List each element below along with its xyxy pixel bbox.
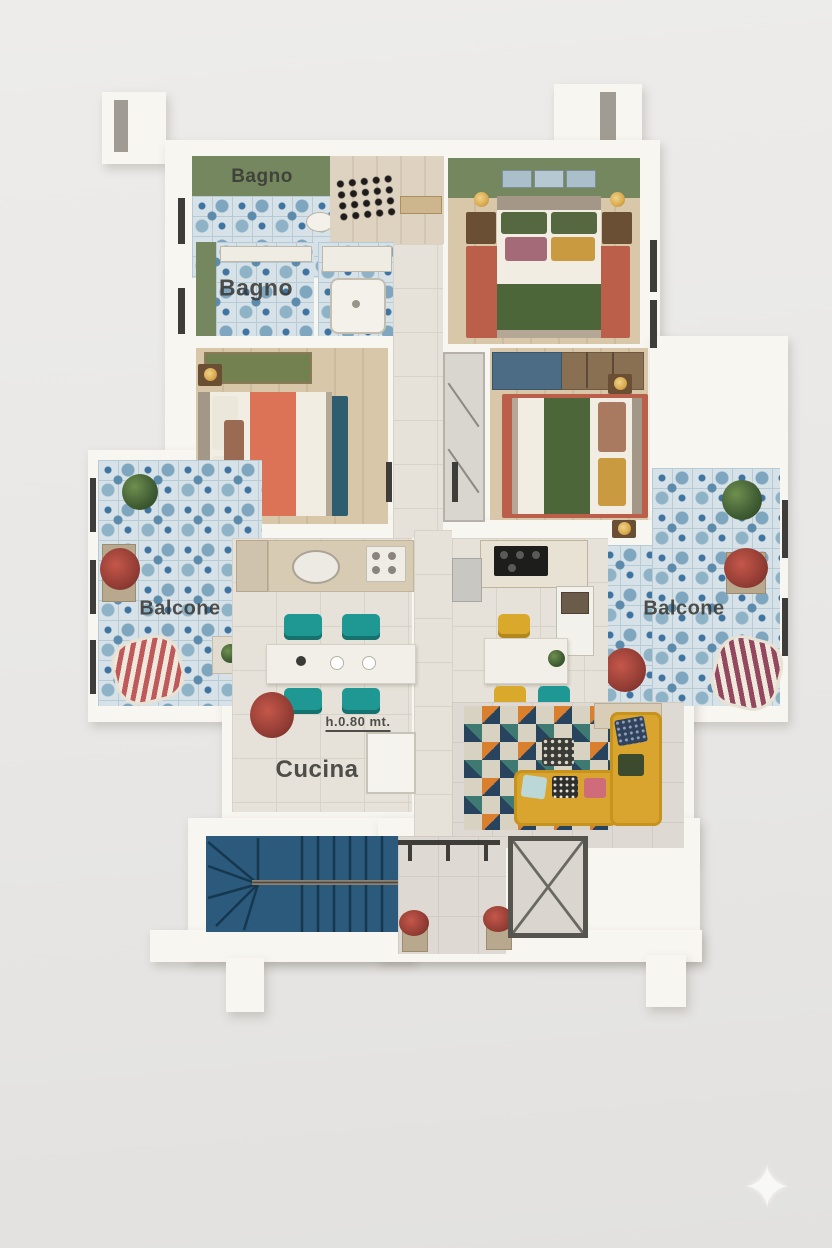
wall-art — [502, 170, 532, 188]
coffee-table — [542, 738, 574, 766]
tableware — [296, 656, 306, 666]
built-in-oven — [561, 592, 589, 614]
burner — [372, 566, 380, 574]
shower-drain — [352, 300, 360, 308]
stove — [366, 546, 406, 582]
sofa-pillow — [614, 716, 648, 747]
burner — [372, 552, 380, 560]
bed-pillow — [501, 212, 547, 234]
sofa-pillow — [584, 778, 606, 798]
flower-plant — [100, 548, 140, 590]
potted-plant — [122, 474, 158, 510]
window-frame — [782, 500, 788, 558]
bed-footboard — [497, 330, 601, 338]
wall-slab-protrusion-left — [226, 958, 264, 1012]
floor-plan-render: { "rooms": [ { "name": "bathroom-top", "… — [0, 0, 832, 1248]
burner — [532, 551, 540, 559]
stair-treads — [206, 836, 402, 932]
window-frame — [782, 598, 788, 656]
bedside-lamp — [204, 368, 217, 381]
bed-footboard — [512, 398, 518, 514]
burner — [508, 564, 516, 572]
nightstand — [602, 212, 632, 244]
flower-plant — [604, 648, 646, 692]
flower-plant — [250, 692, 294, 738]
room-label-cucina: Cucina — [275, 756, 358, 784]
kitchen-sink — [292, 550, 340, 584]
door-frame — [386, 462, 392, 502]
sofa-pillow — [552, 776, 578, 798]
sofa-pillow — [618, 754, 644, 776]
bed-headboard — [497, 196, 601, 210]
stairwell — [206, 836, 402, 932]
bed-accent-pillow — [598, 402, 626, 452]
sofa-pillow — [521, 774, 548, 799]
tall-cabinet — [366, 732, 416, 794]
table-plant — [548, 650, 565, 667]
window-frame — [90, 478, 96, 532]
bedside-lamp — [618, 522, 631, 535]
closet-hangers — [334, 173, 396, 223]
dining-chair-teal — [342, 688, 380, 714]
bed-accent-pillow — [551, 237, 595, 261]
wardrobe-blue-doors — [492, 352, 562, 390]
wall-art — [534, 170, 564, 188]
railing-post — [446, 845, 450, 861]
nightstand — [466, 212, 496, 244]
tableware — [330, 656, 344, 670]
shelf-divider — [586, 352, 588, 388]
washbasin-unit — [322, 246, 392, 272]
window-frame — [178, 288, 185, 334]
bed-footboard — [326, 392, 332, 516]
bedside-lamp — [614, 377, 627, 390]
window-frame — [650, 300, 657, 348]
fridge — [452, 558, 482, 602]
wall-art — [566, 170, 596, 188]
bed-accent-pillow — [505, 237, 547, 261]
bedside-lamp — [474, 192, 489, 207]
corridor-floor — [393, 244, 443, 538]
burner — [388, 552, 396, 560]
room-label-bagno-top: Bagno — [231, 166, 293, 188]
bed-pillow — [551, 212, 597, 234]
burner — [388, 566, 396, 574]
window-frame — [90, 640, 96, 694]
elevator-shaft — [508, 836, 588, 938]
technical-shaft — [443, 352, 485, 522]
bed-accent-pillow — [598, 458, 626, 506]
flower-plant — [399, 910, 429, 936]
room-label-balcone-left: Balcone — [139, 598, 220, 621]
railing-post — [484, 845, 488, 861]
kitchen-cabinet — [236, 540, 268, 592]
dining-chair-teal — [342, 614, 380, 640]
burner — [500, 551, 508, 559]
bed-headboard — [632, 398, 642, 514]
wall-slab-chimney-left — [102, 92, 166, 164]
window-frame — [650, 240, 657, 292]
chimney-slot-left — [114, 100, 128, 152]
bedside-lamp — [610, 192, 625, 207]
corridor-lower-floor — [414, 530, 452, 840]
tableware — [362, 656, 376, 670]
bed-blanket — [544, 398, 590, 514]
bathroom-middle-green-wall — [196, 242, 216, 336]
dining-chair-yellow — [498, 614, 530, 638]
flower-plant — [724, 548, 768, 588]
room-label-bagno-middle: Bagno — [219, 275, 293, 302]
sparkle-watermark-icon: ✦ — [742, 1158, 792, 1218]
door-frame — [452, 462, 458, 502]
vanity — [220, 246, 312, 262]
dining-chair-teal — [284, 614, 322, 640]
window-frame — [90, 560, 96, 614]
burner — [516, 551, 524, 559]
window-frame — [178, 198, 185, 244]
railing-post — [408, 845, 412, 861]
entry-console — [400, 196, 442, 214]
wall-slab-protrusion-right — [646, 955, 686, 1007]
room-label-balcone-right: Balcone — [643, 598, 724, 621]
potted-plant — [722, 480, 762, 520]
bed-blanket — [497, 284, 601, 330]
kitchen-height-note: h.0.80 mt. — [326, 714, 391, 732]
